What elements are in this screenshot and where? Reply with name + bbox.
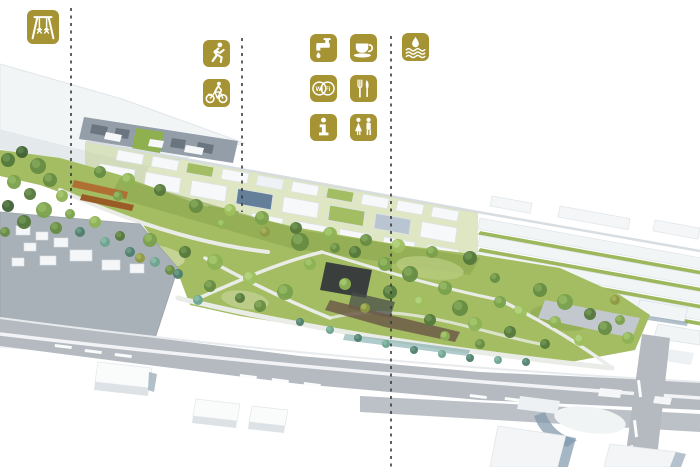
wifi-icon: WiFi xyxy=(310,75,337,102)
information-icon xyxy=(310,114,337,141)
site-plan-illustration xyxy=(0,0,700,467)
swing-playground-icon xyxy=(27,10,59,44)
water-feature-icon xyxy=(402,33,429,61)
drinking-water-icon xyxy=(310,34,337,62)
wifi-icon-text: Fi xyxy=(325,87,331,93)
cycling-icon xyxy=(203,79,230,107)
toilets-icon xyxy=(350,114,377,141)
cafe-icon xyxy=(350,34,377,62)
restaurant-icon xyxy=(350,75,377,102)
wifi-icon-text: Wi xyxy=(316,87,324,93)
running-icon xyxy=(203,40,230,67)
masterplan-visualization: WiFi xyxy=(0,0,700,467)
